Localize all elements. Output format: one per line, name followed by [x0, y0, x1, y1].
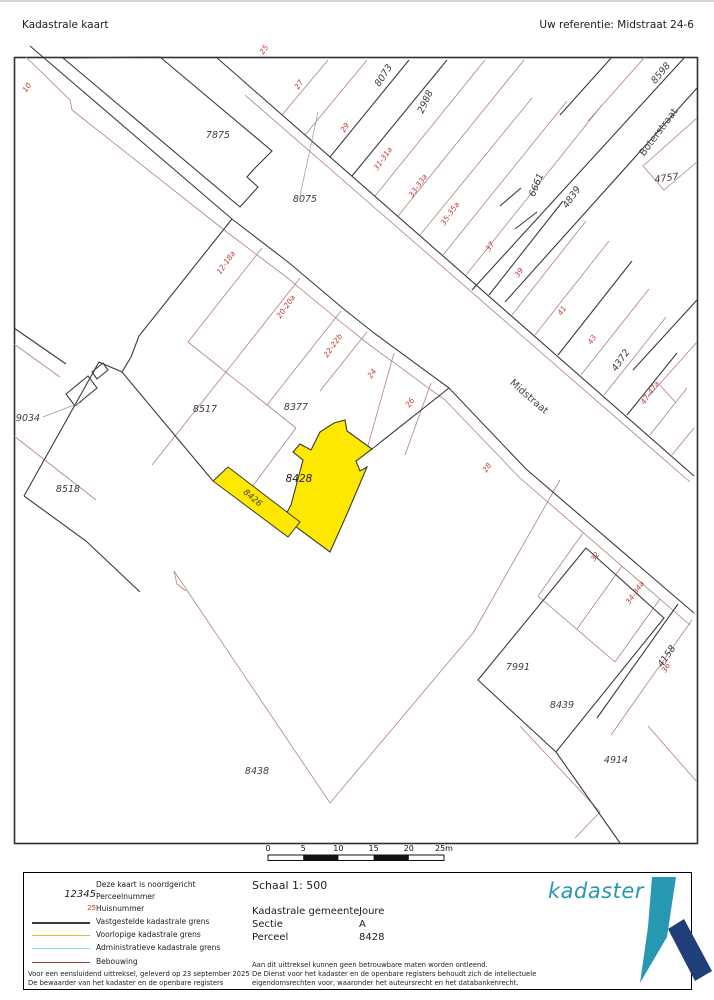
- scale-text: Schaal 1: 500: [252, 879, 327, 892]
- legend-label-voorlopig: Voorlopige kadastrale grens: [96, 930, 201, 939]
- parcel-label-8439: 8439: [550, 700, 574, 711]
- cadastral-extract-page: Kadastrale kaart Uw referentie: Midstraa…: [0, 0, 714, 1000]
- disclaimer-2: De Dienst voor het kadaster en de openba…: [252, 970, 536, 978]
- legend-footnote-2: De bewaarder van het kadaster en de open…: [28, 979, 223, 987]
- parcel-label-8377: 8377: [284, 402, 308, 413]
- legend-line-vastgesteld: [32, 922, 90, 924]
- scale-bar: 0510152025m: [265, 844, 453, 861]
- map-info-box: Deze kaart is noordgericht 12345 Perceel…: [23, 872, 692, 990]
- house-number-25: 25: [258, 43, 271, 56]
- parcel-label-8518: 8518: [56, 484, 80, 495]
- disclaimer-1: Aan dit uittreksel kunnen geen betrouwba…: [252, 961, 488, 969]
- cadastral-map: 7875807580732988859847576661483943728517…: [0, 0, 714, 1000]
- scale-bar-segment: [374, 855, 409, 861]
- parcel-label-4914: 4914: [604, 755, 628, 766]
- parcel-label-7875: 7875: [206, 130, 230, 141]
- scale-tick-5: 5: [301, 844, 306, 853]
- legend-label-bebouwing: Bebouwing: [96, 957, 138, 966]
- perceel-label: Perceel: [252, 932, 288, 943]
- parcel-label-8075: 8075: [293, 194, 317, 205]
- sectie-value: A: [359, 919, 366, 930]
- scale-tick-20: 20: [404, 844, 414, 853]
- north-note: Deze kaart is noordgericht: [96, 880, 196, 889]
- kadaster-logo-icon: [618, 875, 714, 991]
- sectie-label: Sectie: [252, 919, 283, 930]
- parcel-label-8438: 8438: [245, 766, 269, 777]
- disclaimer-3: eigendomsrechten voor, waaronder het aut…: [252, 979, 519, 987]
- legend-footnote-1: Voor een eensluidend uittreksel, gelever…: [28, 970, 250, 978]
- legend-house-sample: 25: [50, 904, 96, 912]
- legend-label-administratief: Administratieve kadastrale grens: [96, 943, 220, 952]
- scale-tick-0: 0: [265, 844, 270, 853]
- legend-line-administratief: [32, 948, 90, 949]
- parcel-label-8428: 8428: [286, 473, 313, 485]
- perceel-value: 8428: [359, 932, 384, 943]
- map-canvas: 7875807580732988859847576661483943728517…: [0, 0, 714, 1000]
- scale-bar-frame: [268, 855, 444, 861]
- gemeente-label: Kadastrale gemeente: [252, 906, 359, 917]
- parcel-label-9034: 9034: [16, 413, 40, 424]
- legend-label-vastgesteld: Vastgestelde kadastrale grens: [96, 917, 209, 926]
- gemeente-value: Joure: [359, 906, 384, 917]
- legend-parcel-label: Perceelnummer: [96, 892, 155, 901]
- legend-parcel-sample: 12345: [50, 889, 96, 900]
- scale-tick-15: 15: [369, 844, 379, 853]
- parcel-label-7991: 7991: [506, 662, 530, 673]
- scale-tick-25m: 25m: [435, 844, 453, 853]
- scale-bar-segment: [303, 855, 338, 861]
- scale-tick-10: 10: [333, 844, 343, 853]
- legend-line-bebouwing: [32, 962, 90, 963]
- logo-navy-stroke: [668, 919, 712, 981]
- legend-line-voorlopig: [32, 935, 90, 936]
- parcel-label-8517: 8517: [193, 404, 217, 415]
- legend-house-label: Huisnummer: [96, 904, 144, 913]
